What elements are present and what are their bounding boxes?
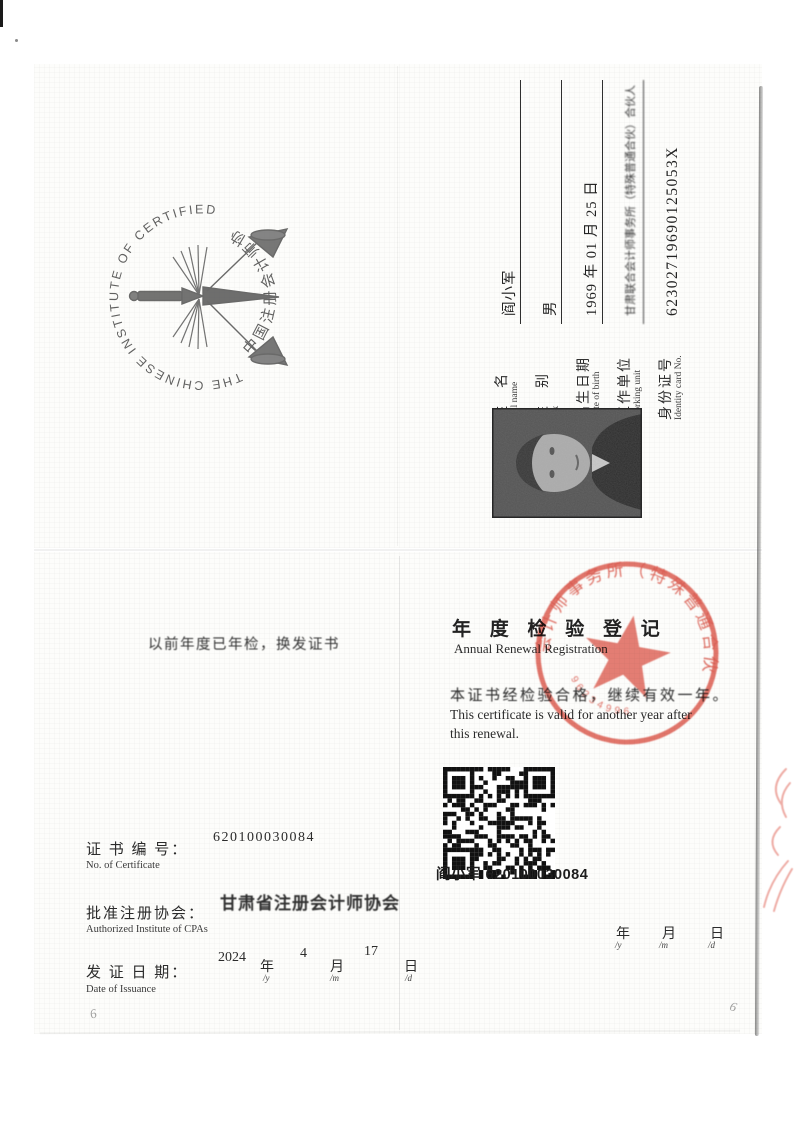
info-row-identity-card: 身份证号 Identity card No. 62302719690125053…: [644, 80, 685, 420]
previous-renewal-note: 以前年度已年检，换发证书: [148, 633, 340, 654]
stamp-star-icon: [578, 608, 676, 701]
issuance-month: 4: [300, 946, 307, 962]
institute-label-en: Authorized Institute of CPAs: [86, 924, 208, 935]
blank-d-small: /d: [708, 940, 715, 950]
qr-caption: 阎小军 620100030084: [436, 863, 588, 884]
cert-no-value: 620100030084: [213, 830, 315, 846]
issuance-y-small: /y: [263, 973, 270, 983]
red-firm-stamp: 会计师事务所（特殊普通合伙） 96234996: [511, 537, 743, 769]
info-row-working-unit: 工作单位 Working unit 甘肃联合会计师事务所（特殊普通合伙）合伙人: [603, 80, 644, 420]
cert-no-label-en: No. of Certificate: [86, 860, 160, 871]
identity-card-label-en: Identity card No.: [674, 324, 685, 420]
identity-card-label-cn: 身份证号: [660, 324, 674, 420]
issuance-label-cn: 发 证 日 期：: [86, 961, 188, 982]
full-name-label-cn: 姓 名: [496, 324, 510, 420]
issuance-label-en: Date of Issuance: [86, 984, 156, 995]
issuance-year: 2024: [218, 950, 246, 966]
fold-line-bottom: [399, 556, 400, 1030]
institute-label-cn: 批准注册协会：: [86, 902, 205, 923]
fold-line-top: [397, 66, 398, 546]
identity-card-value: 62302719690125053X: [664, 80, 685, 324]
issuance-d-small: /d: [405, 973, 412, 983]
id-photo: [492, 408, 642, 518]
working-unit-label-en: Working unit: [633, 324, 644, 420]
info-row-sex: 性 别 Sex 男: [521, 80, 562, 420]
holder-info-block: 姓 名 Full name 阎小军 性 别 Sex 男 出生日期 Date of…: [480, 80, 700, 420]
full-name-value: 阎小军: [498, 80, 521, 324]
birth-date-value: 1969 年 01 月 25 日: [580, 80, 603, 324]
red-margin-marks: [756, 765, 794, 915]
full-name-label-en: Full name: [510, 324, 521, 420]
working-unit-label-cn: 工作单位: [619, 324, 633, 420]
sex-label-en: Sex: [551, 324, 562, 420]
renewal-body-en-line2: this renewal.: [450, 726, 519, 742]
scanner-edge-mark: [0, 0, 3, 27]
info-row-full-name: 姓 名 Full name 阎小军: [480, 80, 521, 420]
spread-separator: [34, 549, 762, 551]
birth-date-label-en: Date of birth: [592, 324, 603, 420]
scanned-certificate-page: THE CHINESE INSTITUTE OF CERTIFIED PUBLI…: [0, 0, 794, 1122]
sex-label-cn: 性 别: [537, 324, 551, 420]
issuance-day: 17: [364, 944, 378, 960]
cert-no-label-cn: 证 书 编 号：: [86, 838, 188, 859]
cicpa-seal: THE CHINESE INSTITUTE OF CERTIFIED PUBLI…: [103, 195, 307, 399]
speck-mark: [15, 39, 18, 42]
birth-date-label-cn: 出生日期: [578, 324, 592, 420]
blank-y-small: /y: [615, 940, 622, 950]
seal-emblem-scales-icon: [130, 229, 288, 365]
issuance-m-small: /m: [330, 973, 339, 983]
institute-value: 甘肃省注册会计师协会: [220, 889, 400, 914]
info-row-birth-date: 出生日期 Date of birth 1969 年 01 月 25 日: [562, 80, 603, 420]
blank-m-small: /m: [659, 940, 668, 950]
working-unit-value: 甘肃联合会计师事务所（特殊普通合伙）合伙人: [622, 80, 644, 324]
sex-value: 男: [539, 80, 562, 324]
